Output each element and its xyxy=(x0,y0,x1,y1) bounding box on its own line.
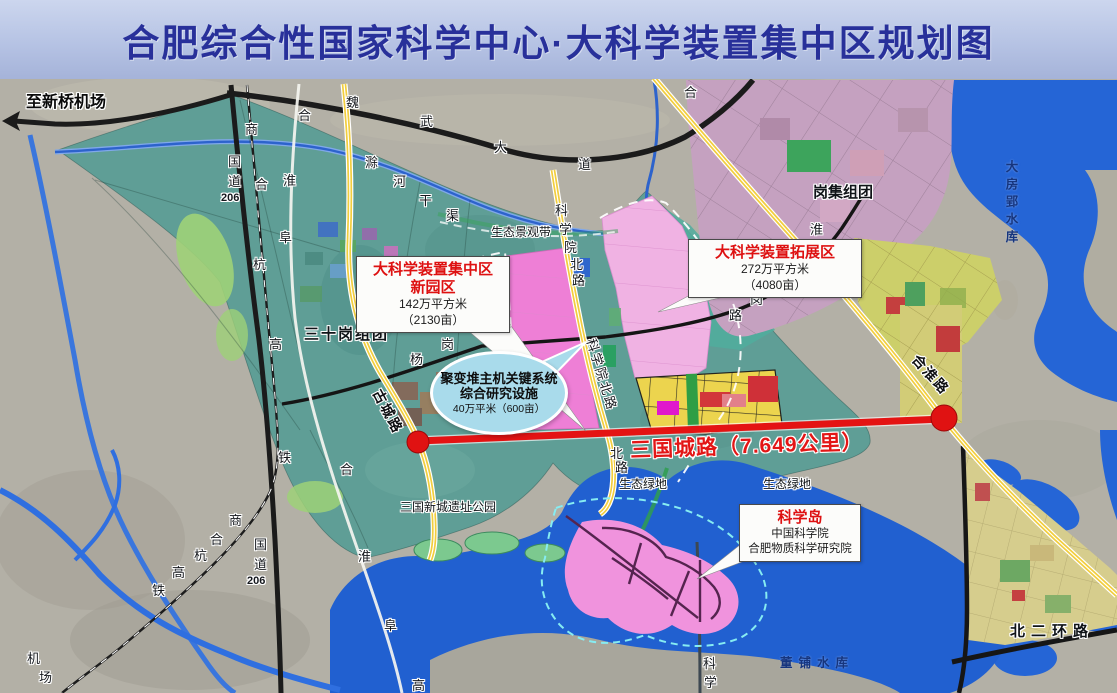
expansion-area: 272万平方米 xyxy=(692,262,858,278)
map-canvas xyxy=(0,0,1117,693)
callout-new-park: 大科学装置集中区 新园区 142万平方米 （2130亩） xyxy=(356,256,510,333)
science-island-line1: 中国科学院 xyxy=(743,527,857,542)
callout-science-island: 科学岛 中国科学院 合肥物质科学研究院 xyxy=(739,504,861,562)
new-park-title-line1: 大科学装置集中区 xyxy=(360,261,506,279)
new-park-area: 142万平方米 xyxy=(360,297,506,313)
expansion-area-mu: （4080亩） xyxy=(692,278,858,294)
fusion-line2: 综合研究设施 xyxy=(460,386,538,402)
planning-map: 合肥综合性国家科学中心·大科学装置集中区规划图 至新桥机场三十岗组团岗集组团北二… xyxy=(0,0,1117,693)
new-park-area-mu: （2130亩） xyxy=(360,313,506,329)
expansion-title: 大科学装置拓展区 xyxy=(692,244,858,262)
fusion-area: 40万平米（600亩） xyxy=(453,403,545,416)
road-endpoint-west xyxy=(407,431,429,453)
callout-expansion-zone: 大科学装置拓展区 272万平方米 （4080亩） xyxy=(688,239,862,298)
new-park-title-line2: 新园区 xyxy=(360,279,506,297)
title-bar: 合肥综合性国家科学中心·大科学装置集中区规划图 xyxy=(0,0,1117,79)
fusion-line1: 聚变堆主机关键系统 xyxy=(440,371,557,387)
science-island-line2: 合肥物质科学研究院 xyxy=(743,542,857,557)
road-endpoint-east xyxy=(931,405,957,431)
page-title: 合肥综合性国家科学中心·大科学装置集中区规划图 xyxy=(122,13,994,67)
science-island-title: 科学岛 xyxy=(743,509,857,527)
callout-fusion-facility: 聚变堆主机关键系统 综合研究设施 40万平米（600亩） xyxy=(430,351,568,435)
